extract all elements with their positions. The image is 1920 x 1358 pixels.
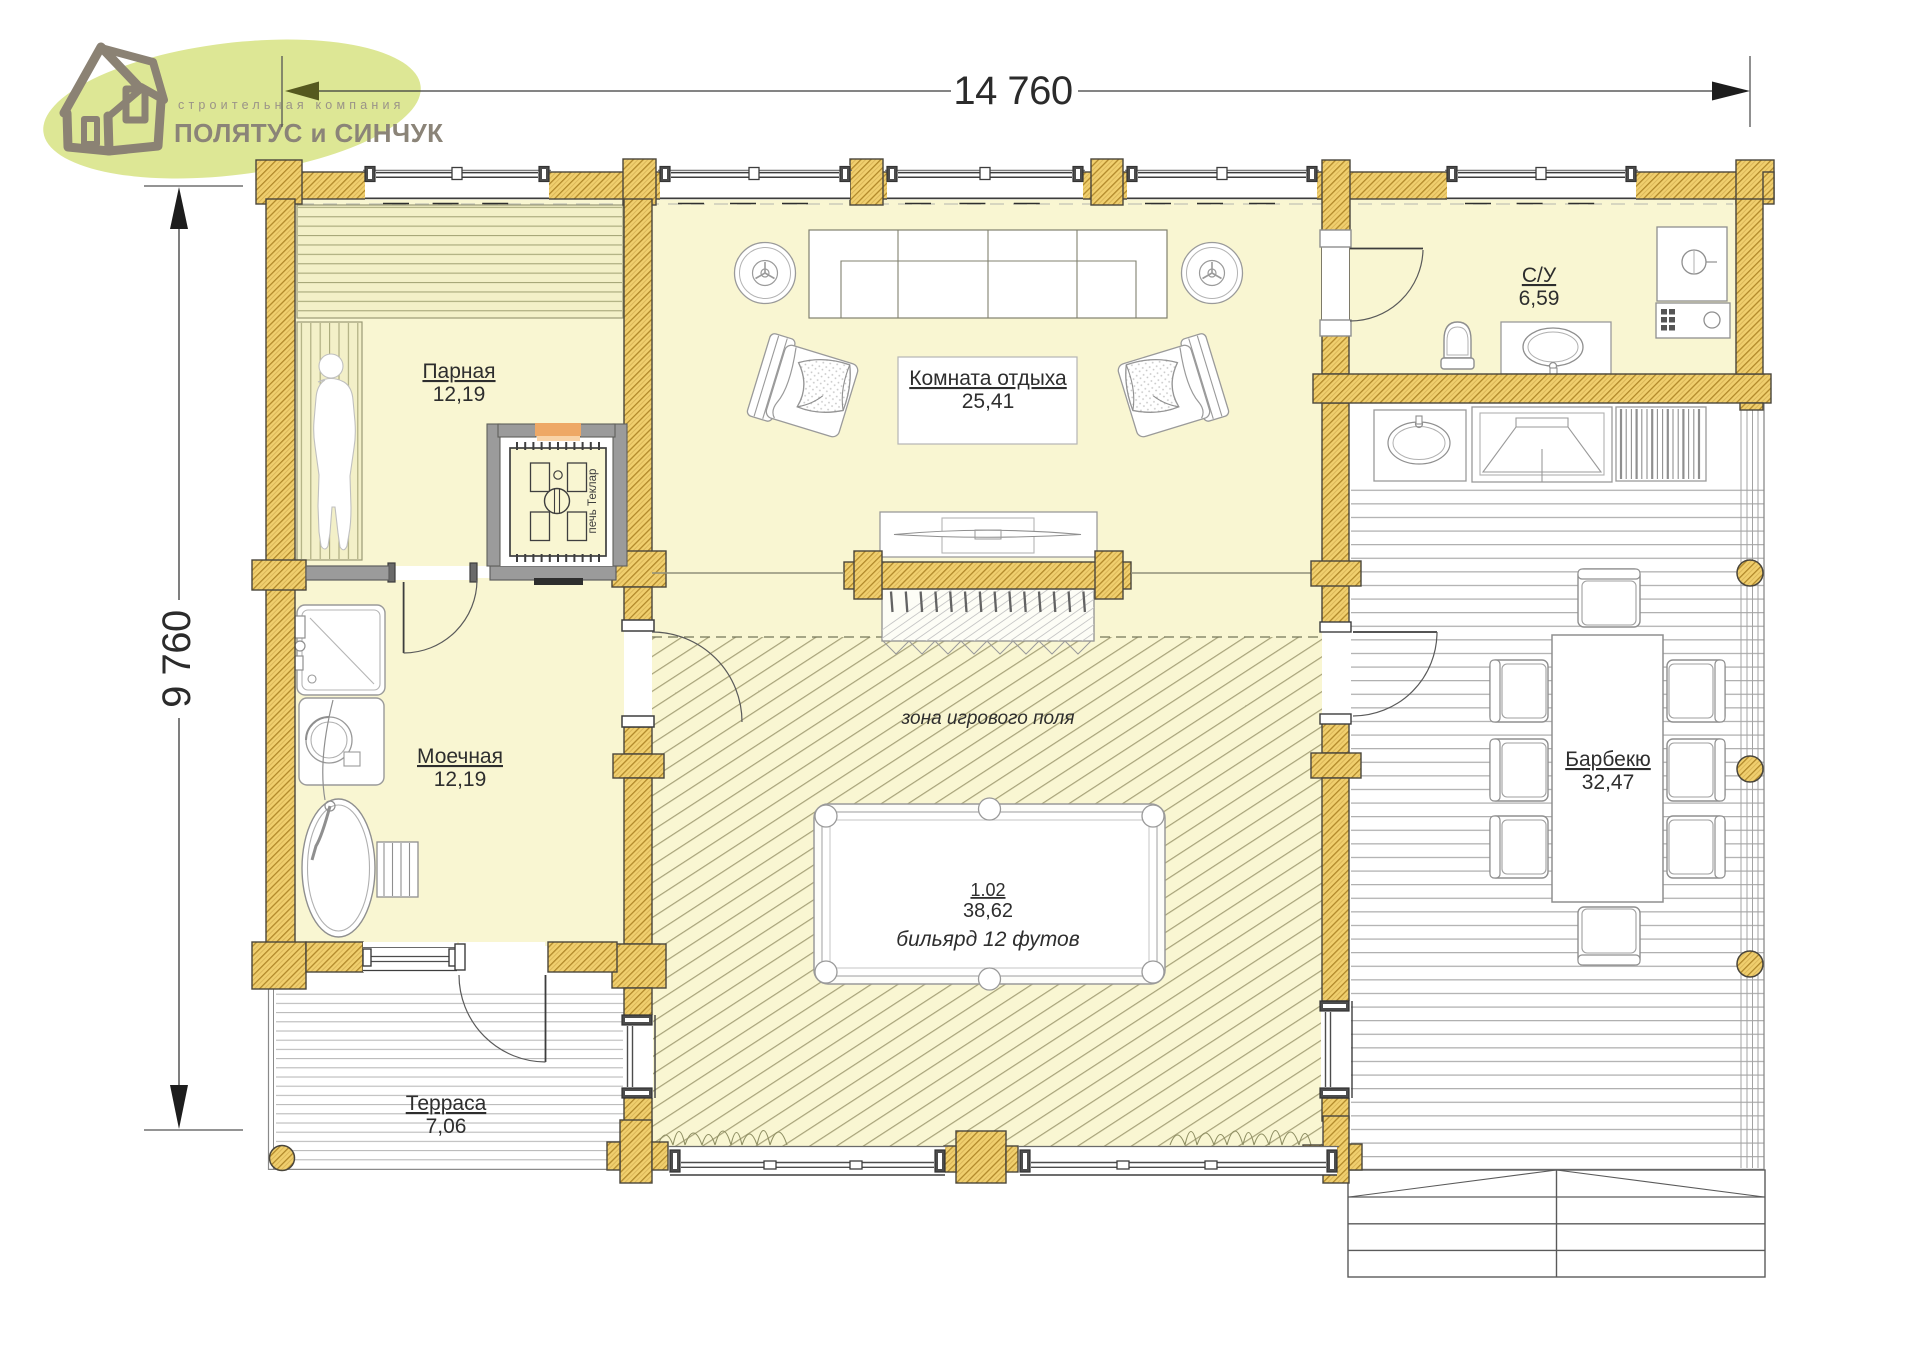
svg-text:зона игрового поля: зона игрового поля [900,708,1074,729]
svg-text:Моечная: Моечная [417,745,503,768]
svg-text:12,19: 12,19 [433,383,486,406]
svg-text:Комната отдыха: Комната отдыха [909,367,1067,390]
svg-text:9 760: 9 760 [155,610,199,708]
svg-text:Парная: Парная [422,360,495,383]
svg-text:печь Теклар: печь Теклар [587,469,599,534]
svg-text:12,19: 12,19 [434,768,487,791]
svg-text:Барбекю: Барбекю [1565,748,1651,771]
svg-text:25,41: 25,41 [962,390,1015,413]
svg-text:1.02: 1.02 [970,880,1005,900]
svg-text:38,62: 38,62 [963,900,1013,922]
svg-text:строительная компания: строительная компания [178,98,405,112]
svg-text:ПОЛЯТУС и СИНЧУК: ПОЛЯТУС и СИНЧУК [174,118,443,148]
svg-text:Терраса: Терраса [406,1092,487,1115]
svg-text:С/У: С/У [1522,264,1557,287]
svg-text:32,47: 32,47 [1582,771,1635,794]
svg-text:14 760: 14 760 [953,69,1072,113]
svg-text:6,59: 6,59 [1519,287,1560,310]
svg-text:бильярд 12 футов: бильярд 12 футов [896,928,1079,951]
svg-text:7,06: 7,06 [426,1115,467,1138]
